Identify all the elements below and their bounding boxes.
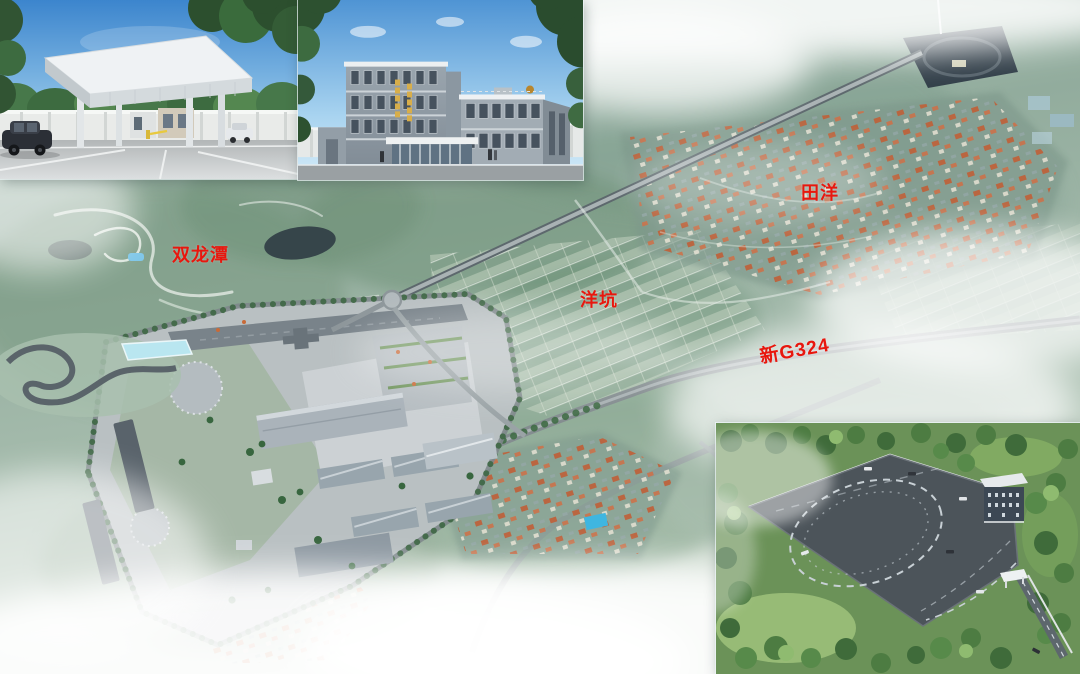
inspection-booths — [130, 108, 194, 139]
person — [488, 149, 492, 160]
inset-office-building-rendering — [298, 0, 583, 180]
front-road — [298, 165, 583, 180]
building-emblem — [526, 86, 534, 94]
aerial-masterplan-rendering: 双龙潭 田洋 洋坑 新G324 — [0, 0, 1080, 674]
blue-pond — [128, 253, 144, 261]
person — [494, 150, 497, 160]
office-building-rendering — [298, 0, 583, 180]
place-label-yangkeng: 洋坑 — [580, 291, 618, 309]
track-building — [980, 473, 1028, 522]
entrance-roundabout — [383, 291, 401, 309]
inset-entrance-canopy-rendering — [0, 0, 298, 179]
person — [380, 151, 384, 162]
test-track-rendering — [716, 423, 1080, 674]
inset-test-track-aerial-rendering — [716, 423, 1080, 674]
place-label-tianyang: 田洋 — [801, 184, 839, 202]
canopy-rendering — [0, 0, 298, 179]
place-label-shuanglongtan: 双龙潭 — [172, 246, 229, 264]
